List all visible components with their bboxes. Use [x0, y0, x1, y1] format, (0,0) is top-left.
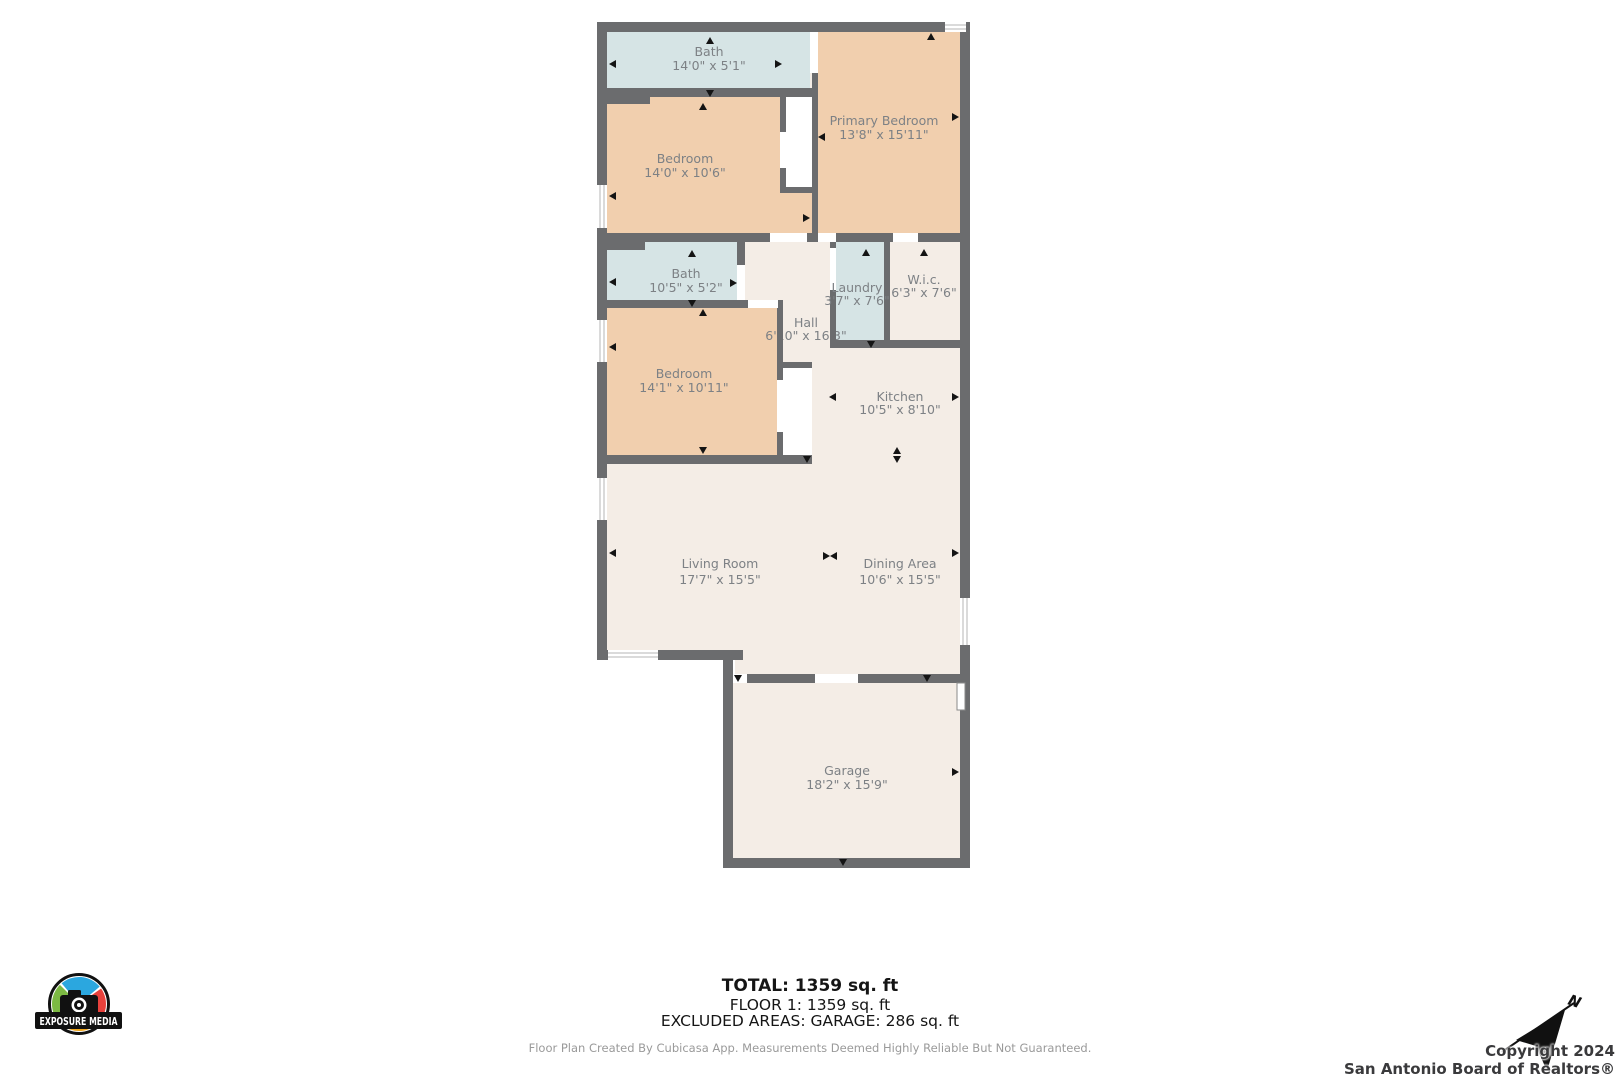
garage-door-leaf [957, 683, 965, 710]
room-label: Bedroom [657, 151, 714, 166]
room-dims: 14'0" x 10'6" [644, 165, 725, 180]
window [597, 185, 607, 228]
room-label: Primary Bedroom [830, 113, 939, 128]
excluded-area-text: EXCLUDED AREAS: GARAGE: 286 sq. ft [0, 1012, 1620, 1030]
room-dims: 10'6" x 15'5" [859, 572, 940, 587]
floor-plan-drawing: Hall 6'10" x 16'3" [0, 0, 1620, 1080]
room-label: Garage [824, 763, 870, 778]
room-label: Bath [694, 44, 723, 59]
room-label: Living Room [682, 556, 759, 571]
room-label: Bedroom [656, 366, 713, 381]
window [608, 650, 658, 660]
room-dims: 18'2" x 15'9" [806, 777, 887, 792]
total-area-text: TOTAL: 1359 sq. ft [0, 976, 1620, 996]
room-dims: 10'5" x 8'10" [859, 402, 940, 417]
closet-bedroom-2 [783, 368, 812, 455]
window [960, 598, 970, 645]
copyright-year-text: Copyright 2024 [1485, 1042, 1615, 1060]
copyright-board-text: San Antonio Board of Realtors® [1344, 1060, 1615, 1078]
window [597, 478, 607, 520]
room-label: Bath [671, 266, 700, 281]
room-label: Dining Area [863, 556, 936, 571]
room-dims: 13'8" x 15'11" [839, 127, 928, 142]
room-dims: 10'5" x 5'2" [649, 280, 722, 295]
disclaimer-text: Floor Plan Created By Cubicasa App. Meas… [0, 1041, 1620, 1055]
room-dims: 3'7" x 7'6" [824, 293, 890, 308]
window [945, 22, 966, 32]
room-dims: 14'0" x 5'1" [672, 58, 745, 73]
room-dims: 14'1" x 10'11" [639, 380, 728, 395]
window [597, 320, 607, 362]
room-dining-extension [735, 652, 960, 674]
floor-plan-page: Hall 6'10" x 16'3" [0, 0, 1620, 1080]
room-dims: 17'7" x 15'5" [679, 572, 760, 587]
closet-bedroom-1 [786, 96, 812, 187]
room-dims: 6'3" x 7'6" [891, 285, 957, 300]
